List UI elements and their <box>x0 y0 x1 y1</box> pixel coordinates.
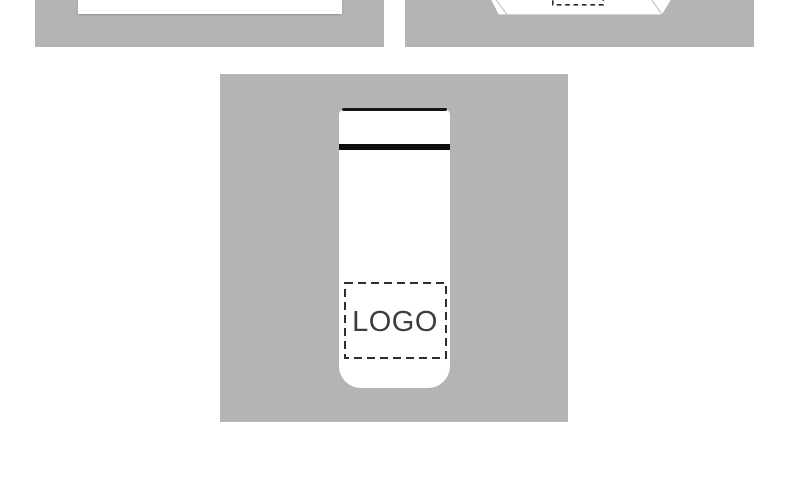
mockup-tile-bottle[interactable]: LOGO <box>220 74 568 422</box>
box-mockup-preview <box>405 0 754 47</box>
logo-placeholder: LOGO <box>344 282 447 359</box>
logo-placeholder-label: LOGO <box>344 282 447 359</box>
mockup-gallery: LOGO <box>0 0 790 493</box>
bottle-lid-band <box>339 144 450 150</box>
mockup-tile-box[interactable] <box>405 0 754 47</box>
card-mockup-preview <box>78 0 342 14</box>
box-shape <box>485 0 679 14</box>
bottle-mockup-preview: LOGO <box>339 109 450 388</box>
mockup-tile-card[interactable] <box>35 0 384 47</box>
bottle-lid-line <box>342 108 447 111</box>
